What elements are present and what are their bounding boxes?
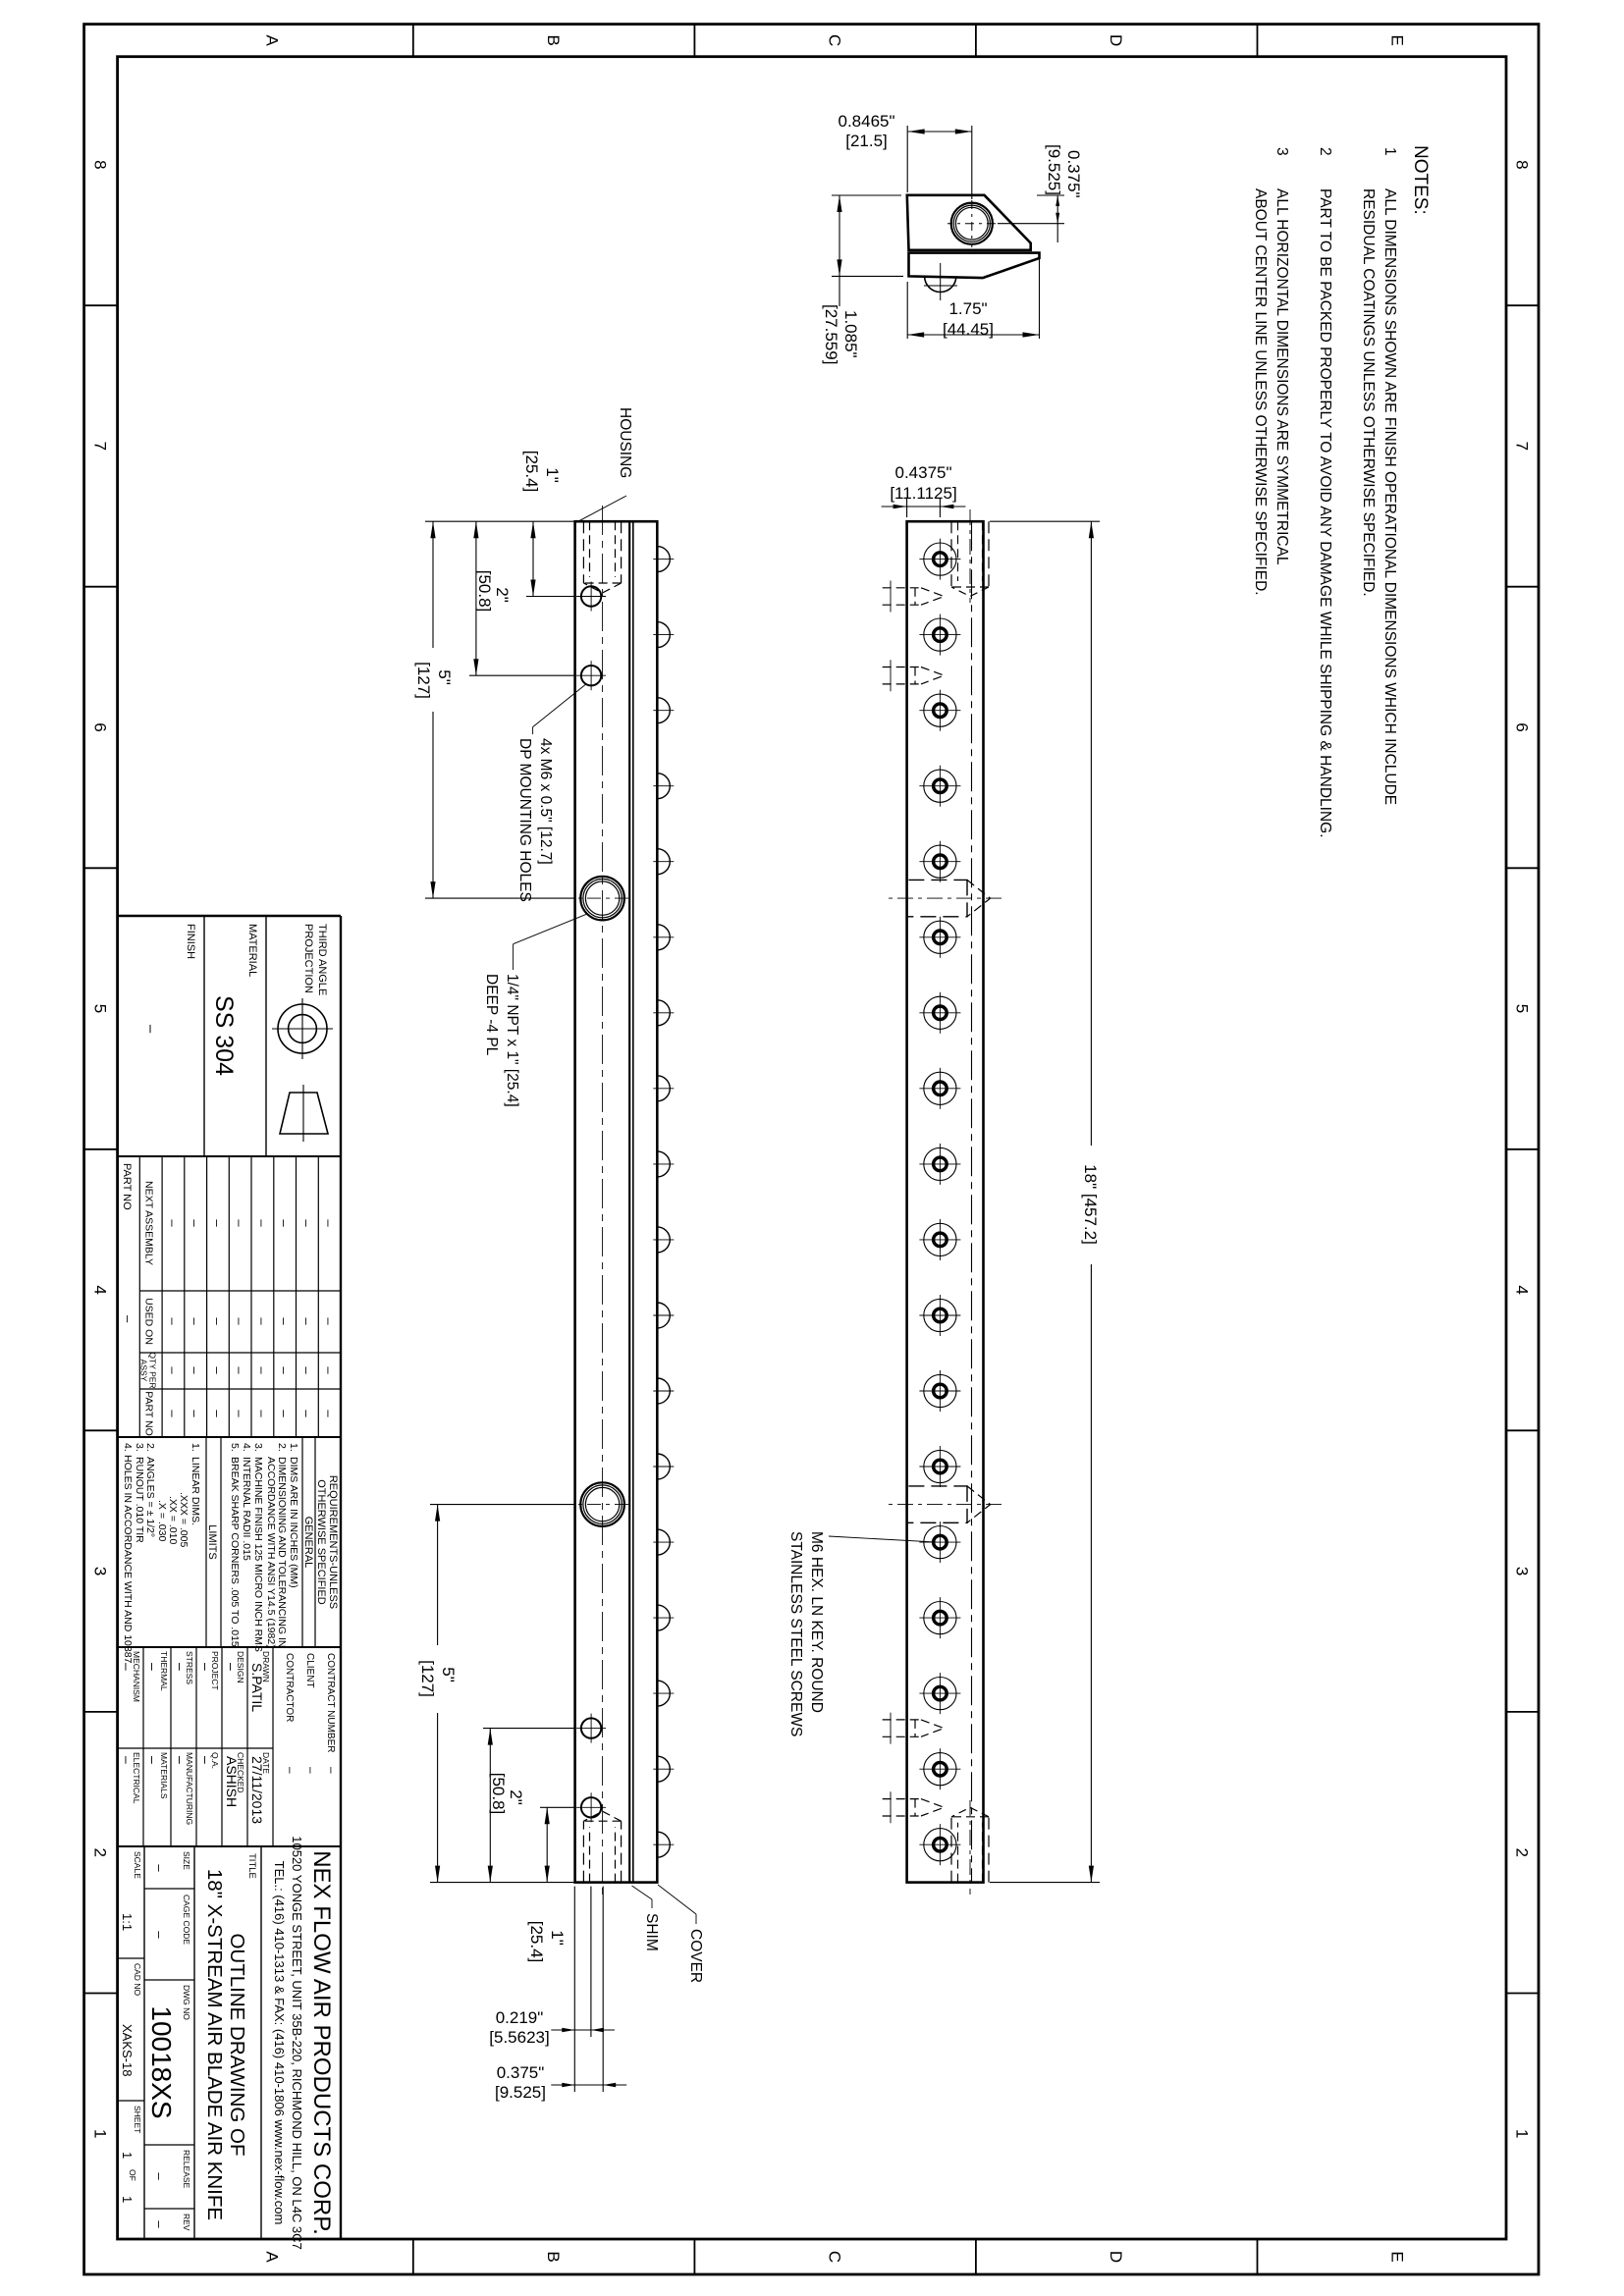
svg-text:ALL DIMENSIONS SHOWN ARE FINIS: ALL DIMENSIONS SHOWN ARE FINISH OPERATIO… bbox=[1381, 188, 1398, 805]
svg-text:–: – bbox=[210, 1219, 225, 1227]
svg-text:–: – bbox=[322, 1317, 337, 1325]
svg-text:7: 7 bbox=[1513, 442, 1532, 451]
svg-text:QTY PER: QTY PER bbox=[148, 1352, 158, 1388]
svg-text:[25.4]: [25.4] bbox=[527, 1921, 546, 1963]
svg-text:5": 5" bbox=[439, 1667, 458, 1682]
svg-text:ANGLES = ± 1/2°: ANGLES = ± 1/2° bbox=[144, 1457, 156, 1537]
svg-text:OUTLINE DRAWING OF: OUTLINE DRAWING OF bbox=[226, 1933, 248, 2156]
svg-text:–: – bbox=[325, 1767, 339, 1774]
svg-text:2: 2 bbox=[1317, 147, 1333, 156]
svg-text:E: E bbox=[1388, 35, 1407, 46]
svg-text:STAINLESS STEEL SCREWS: STAINLESS STEEL SCREWS bbox=[787, 1531, 804, 1736]
svg-text:DIMS ARE IN INCHES (MM): DIMS ARE IN INCHES (MM) bbox=[288, 1457, 299, 1588]
svg-text:LIMITS: LIMITS bbox=[206, 1524, 218, 1559]
svg-text:1.: 1. bbox=[189, 1443, 201, 1452]
svg-text:2: 2 bbox=[91, 1847, 110, 1856]
svg-text:–: – bbox=[254, 1366, 269, 1374]
svg-text:0.375": 0.375" bbox=[1064, 150, 1083, 198]
svg-text:MATERIAL: MATERIAL bbox=[246, 924, 258, 977]
svg-text:1: 1 bbox=[120, 2196, 135, 2203]
svg-text:2": 2" bbox=[507, 1789, 525, 1805]
svg-text:–: – bbox=[145, 1663, 161, 1671]
svg-text:1: 1 bbox=[120, 2152, 135, 2159]
svg-text:4x M6 x 0.5" [12.7]: 4x M6 x 0.5" [12.7] bbox=[537, 738, 554, 865]
svg-text:1:1: 1:1 bbox=[120, 1913, 135, 1931]
svg-text:DEEP -4 PL: DEEP -4 PL bbox=[483, 974, 500, 1056]
svg-text:D: D bbox=[1107, 34, 1125, 46]
svg-text:–: – bbox=[188, 1366, 202, 1374]
svg-text:FINISH: FINISH bbox=[185, 924, 196, 959]
svg-text:[9.525]: [9.525] bbox=[495, 2083, 546, 2102]
svg-text:6: 6 bbox=[1513, 722, 1532, 731]
svg-text:RUNOUT .010 TIR: RUNOUT .010 TIR bbox=[134, 1457, 145, 1543]
svg-text:4: 4 bbox=[91, 1285, 110, 1294]
svg-text:3: 3 bbox=[1513, 1567, 1532, 1575]
svg-text:–: – bbox=[152, 1864, 167, 1872]
svg-text:NEXT ASSEMBLY: NEXT ASSEMBLY bbox=[143, 1181, 155, 1265]
svg-text:ABOUT CENTER LINE UNLESS OTHER: ABOUT CENTER LINE UNLESS OTHERWISE SPECI… bbox=[1252, 188, 1269, 596]
svg-text:–: – bbox=[120, 1756, 135, 1764]
svg-text:C: C bbox=[826, 2251, 844, 2263]
svg-text:.XXX = .005: .XXX = .005 bbox=[178, 1492, 189, 1547]
svg-text:–: – bbox=[233, 1366, 247, 1374]
svg-text:–: – bbox=[188, 1219, 202, 1227]
svg-text:7: 7 bbox=[91, 442, 110, 451]
svg-text:A: A bbox=[263, 35, 282, 47]
svg-text:MECHANISM: MECHANISM bbox=[132, 1651, 141, 1702]
svg-text:ASHISH: ASHISH bbox=[224, 1756, 240, 1807]
svg-text:–: – bbox=[198, 1663, 214, 1671]
svg-text:–: – bbox=[210, 1317, 225, 1325]
svg-text:–: – bbox=[304, 1767, 318, 1774]
svg-text:–: – bbox=[284, 1767, 298, 1774]
svg-text:3: 3 bbox=[1273, 147, 1290, 156]
svg-text:3: 3 bbox=[91, 1567, 110, 1575]
svg-text:PROJECT: PROJECT bbox=[210, 1651, 220, 1690]
svg-text:B: B bbox=[544, 2251, 563, 2262]
svg-text:S.PATIL: S.PATIL bbox=[249, 1663, 265, 1712]
svg-text:–: – bbox=[254, 1410, 269, 1417]
svg-text:–: – bbox=[254, 1317, 269, 1325]
svg-text:1.: 1. bbox=[288, 1443, 299, 1452]
svg-text:5.: 5. bbox=[229, 1443, 241, 1452]
svg-text:[44.45]: [44.45] bbox=[943, 320, 994, 339]
svg-text:SCALE: SCALE bbox=[133, 1851, 142, 1879]
svg-text:ALL HORIZONTAL DIMENSIONS ARE: ALL HORIZONTAL DIMENSIONS ARE SYMMETRICA… bbox=[1273, 188, 1290, 565]
svg-text:[127]: [127] bbox=[418, 1660, 437, 1697]
svg-text:[21.5]: [21.5] bbox=[845, 132, 888, 150]
svg-text:–: – bbox=[120, 1663, 135, 1671]
svg-text:–: – bbox=[277, 1317, 292, 1325]
svg-text:3.: 3. bbox=[134, 1443, 145, 1452]
svg-text:–: – bbox=[299, 1317, 314, 1325]
svg-text:1.085": 1.085" bbox=[841, 310, 860, 358]
svg-text:–: – bbox=[142, 1025, 159, 1034]
svg-text:–: – bbox=[198, 1756, 214, 1764]
svg-text:1: 1 bbox=[1513, 2129, 1532, 2138]
svg-text:–: – bbox=[277, 1410, 292, 1417]
svg-text:2.: 2. bbox=[276, 1443, 288, 1452]
svg-text:2.: 2. bbox=[144, 1443, 156, 1452]
svg-text:2: 2 bbox=[1513, 1847, 1532, 1856]
svg-text:5: 5 bbox=[1513, 1004, 1532, 1013]
svg-text:1/4" NPT x 1" [25.4]: 1/4" NPT x 1" [25.4] bbox=[504, 974, 520, 1107]
svg-text:–: – bbox=[299, 1219, 314, 1227]
svg-text:OTHERWISE SPECIFIED: OTHERWISE SPECIFIED bbox=[315, 1479, 327, 1605]
svg-text:–: – bbox=[173, 1756, 189, 1764]
svg-text:18" X-STREAM AIR BLADE AIR KNI: 18" X-STREAM AIR BLADE AIR KNIFE bbox=[203, 1869, 226, 2220]
svg-text:PART TO BE PACKED PROPERLY TO: PART TO BE PACKED PROPERLY TO AVOID ANY … bbox=[1317, 188, 1333, 838]
svg-text:GENERAL: GENERAL bbox=[302, 1517, 314, 1569]
svg-text:–: – bbox=[210, 1410, 225, 1417]
svg-text:–: – bbox=[121, 1315, 135, 1323]
svg-text:B: B bbox=[544, 35, 563, 46]
svg-text:3.: 3. bbox=[252, 1443, 264, 1452]
svg-text:8: 8 bbox=[91, 160, 110, 169]
svg-text:–: – bbox=[210, 1366, 225, 1374]
svg-text:0.4375": 0.4375" bbox=[894, 463, 951, 482]
svg-text:OF: OF bbox=[128, 2169, 137, 2181]
svg-text:ACCORDANCE WITH ANSI Y14.5 (19: ACCORDANCE WITH ANSI Y14.5 (1982) bbox=[265, 1457, 277, 1648]
svg-text:2": 2" bbox=[493, 587, 512, 603]
svg-text:–: – bbox=[277, 1219, 292, 1227]
svg-text:10520 YONGE STREET, UNIT 35B-2: 10520 YONGE STREET, UNIT 35B-220, RICHMO… bbox=[290, 1836, 304, 2249]
svg-text:ASSY: ASSY bbox=[139, 1360, 149, 1382]
svg-text:–: – bbox=[145, 1756, 161, 1764]
svg-text:–: – bbox=[165, 1219, 180, 1227]
svg-text:DP MOUNTING HOLES: DP MOUNTING HOLES bbox=[516, 738, 533, 902]
svg-text:LINEAR DIMS.: LINEAR DIMS. bbox=[189, 1457, 201, 1525]
svg-text:–: – bbox=[188, 1410, 202, 1417]
svg-text:–: – bbox=[299, 1410, 314, 1417]
svg-text:10018XS: 10018XS bbox=[146, 2005, 177, 2118]
svg-text:NEX FLOW AIR PRODUCTS CORP.: NEX FLOW AIR PRODUCTS CORP. bbox=[308, 1850, 335, 2235]
svg-text:–: – bbox=[233, 1410, 247, 1417]
svg-text:1.75": 1.75" bbox=[948, 299, 987, 318]
svg-text:XAKS-18: XAKS-18 bbox=[120, 2024, 135, 2076]
svg-text:–: – bbox=[152, 2172, 167, 2180]
svg-text:8: 8 bbox=[1513, 160, 1532, 169]
svg-text:.XX = .010: .XX = .010 bbox=[167, 1496, 179, 1544]
svg-text:PART NO: PART NO bbox=[143, 1391, 155, 1436]
svg-text:SS 304: SS 304 bbox=[210, 995, 238, 1076]
svg-text:4: 4 bbox=[1513, 1285, 1532, 1294]
svg-text:DIMENSIONING AND TOLERANCING I: DIMENSIONING AND TOLERANCING IN bbox=[276, 1457, 288, 1647]
svg-text:NOTES:: NOTES: bbox=[1410, 145, 1431, 215]
svg-text:–: – bbox=[152, 1931, 167, 1939]
svg-text:0.375": 0.375" bbox=[497, 2063, 545, 2082]
svg-text:1: 1 bbox=[1381, 147, 1398, 156]
svg-text:–: – bbox=[173, 1663, 189, 1671]
svg-text:SHIM: SHIM bbox=[643, 1913, 660, 1951]
svg-text:6: 6 bbox=[91, 722, 110, 731]
svg-text:REQUIREMENTS-UNLESS: REQUIREMENTS-UNLESS bbox=[327, 1475, 339, 1609]
svg-text:RESIDUAL COATINGS UNLESS OTHER: RESIDUAL COATINGS UNLESS OTHERWISE SPECI… bbox=[1360, 188, 1377, 597]
svg-text:HOLES IN ACCORDANCE WITH AND 1: HOLES IN ACCORDANCE WITH AND 10387 bbox=[122, 1455, 134, 1664]
svg-text:A: A bbox=[263, 2251, 282, 2263]
svg-text:SHEET: SHEET bbox=[133, 2106, 142, 2133]
svg-text:1": 1" bbox=[548, 1930, 567, 1946]
svg-text:E: E bbox=[1388, 2251, 1407, 2262]
svg-text:RELEASE: RELEASE bbox=[182, 2150, 191, 2189]
svg-text:TEL.: (416) 410-1313 & FAX: (4: TEL.: (416) 410-1313 & FAX: (416) 410-18… bbox=[272, 1861, 287, 2225]
svg-text:INTERNAL RADII .015: INTERNAL RADII .015 bbox=[241, 1457, 252, 1561]
svg-text:4.: 4. bbox=[241, 1443, 252, 1452]
svg-text:TITLE: TITLE bbox=[246, 1853, 257, 1879]
svg-text:–: – bbox=[165, 1410, 180, 1417]
svg-text:5": 5" bbox=[435, 669, 454, 685]
svg-text:0.219": 0.219" bbox=[496, 2008, 544, 2027]
svg-text:PROJECTION: PROJECTION bbox=[302, 924, 314, 993]
svg-text:4.: 4. bbox=[122, 1443, 134, 1452]
svg-text:–: – bbox=[224, 1663, 240, 1671]
svg-text:CONTRACT NUMBER: CONTRACT NUMBER bbox=[325, 1653, 336, 1752]
svg-text:[25.4]: [25.4] bbox=[522, 451, 541, 493]
svg-text:–: – bbox=[188, 1317, 202, 1325]
svg-text:CONTRACTOR: CONTRACTOR bbox=[284, 1653, 295, 1722]
svg-text:–: – bbox=[152, 2220, 167, 2228]
svg-text:18" [457.2]: 18" [457.2] bbox=[1081, 1164, 1100, 1245]
svg-text:1: 1 bbox=[91, 2129, 110, 2138]
svg-text:.X = .030: .X = .030 bbox=[156, 1500, 168, 1541]
svg-text:CAGE CODE: CAGE CODE bbox=[182, 1895, 191, 1945]
svg-text:–: – bbox=[322, 1219, 337, 1227]
svg-text:[50.8]: [50.8] bbox=[489, 1773, 508, 1815]
svg-text:MACHINE FINISH 125 MICRO INCH: MACHINE FINISH 125 MICRO INCH RMS bbox=[252, 1457, 264, 1652]
svg-text:–: – bbox=[299, 1366, 314, 1374]
svg-text:[50.8]: [50.8] bbox=[475, 570, 494, 613]
svg-text:M6 HEX. LN KEY. ROUND: M6 HEX. LN KEY. ROUND bbox=[808, 1531, 825, 1713]
svg-text:27/11/2013: 27/11/2013 bbox=[249, 1756, 265, 1824]
svg-text:–: – bbox=[254, 1219, 269, 1227]
svg-text:CLIENT: CLIENT bbox=[304, 1653, 315, 1688]
svg-text:[11.1125]: [11.1125] bbox=[890, 484, 956, 503]
svg-text:[127]: [127] bbox=[414, 662, 433, 699]
svg-text:CAD NO: CAD NO bbox=[133, 1963, 142, 1996]
svg-text:[27.559]: [27.559] bbox=[822, 304, 840, 364]
svg-text:–: – bbox=[165, 1366, 180, 1374]
svg-text:[9.525]: [9.525] bbox=[1045, 144, 1063, 195]
svg-text:–: – bbox=[277, 1366, 292, 1374]
svg-text:THIRD ANGLE: THIRD ANGLE bbox=[316, 924, 328, 995]
svg-text:D: D bbox=[1107, 2251, 1125, 2263]
svg-text:SIZE: SIZE bbox=[182, 1851, 191, 1870]
svg-text:–: – bbox=[233, 1219, 247, 1227]
svg-text:BREAK SHARP CORNERS .005 TO .0: BREAK SHARP CORNERS .005 TO .015 bbox=[229, 1457, 241, 1647]
svg-text:–: – bbox=[322, 1366, 337, 1374]
svg-text:COVER: COVER bbox=[687, 1929, 704, 1983]
svg-text:–: – bbox=[233, 1317, 247, 1325]
svg-text:–: – bbox=[322, 1410, 337, 1417]
svg-text:–: – bbox=[165, 1317, 180, 1325]
svg-text:PART NO: PART NO bbox=[121, 1163, 133, 1210]
svg-text:1": 1" bbox=[543, 467, 562, 483]
svg-text:HOUSING: HOUSING bbox=[617, 407, 633, 478]
svg-text:THERMAL: THERMAL bbox=[159, 1651, 169, 1691]
svg-text:USED ON: USED ON bbox=[143, 1298, 155, 1345]
svg-text:[5.5623]: [5.5623] bbox=[489, 2028, 549, 2047]
svg-text:C: C bbox=[826, 34, 844, 46]
svg-text:0.8465": 0.8465" bbox=[838, 112, 894, 131]
svg-text:REV: REV bbox=[182, 2214, 191, 2231]
svg-text:DWG NO: DWG NO bbox=[182, 1985, 191, 2020]
svg-text:5: 5 bbox=[91, 1004, 110, 1013]
